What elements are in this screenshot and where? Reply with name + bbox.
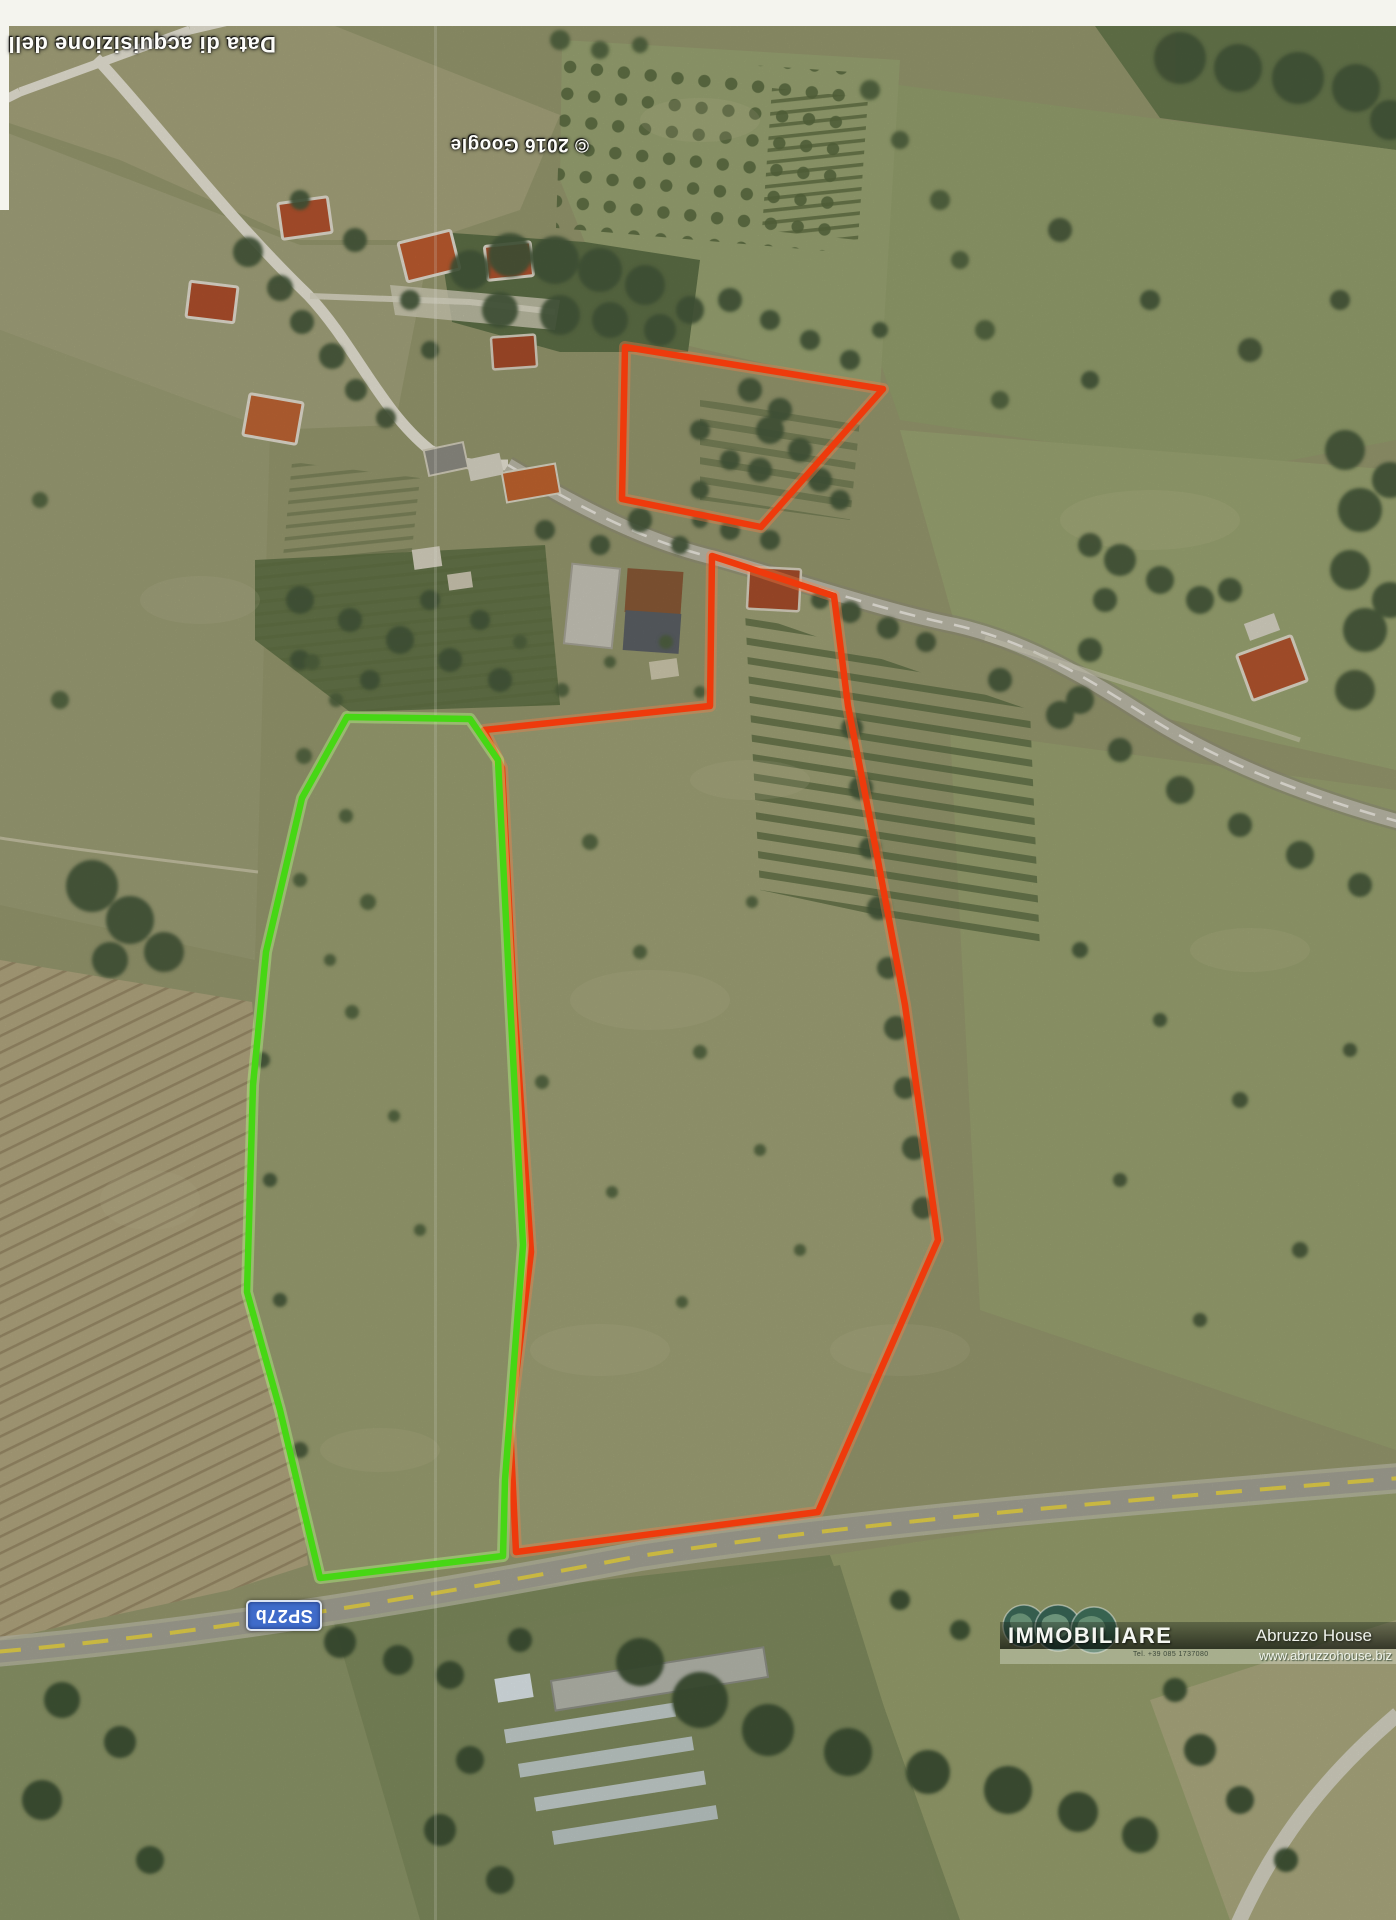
aerial-photo-scan: Data di acquisizione dell © 2016 Google …	[0, 0, 1396, 1920]
watermark-phone-text: Tel. +39 085 1737080	[1133, 1651, 1209, 1658]
google-copyright-caption: © 2016 Google	[413, 129, 589, 155]
watermark-agency-text: Abruzzo House	[1256, 1626, 1372, 1646]
scan-margin-top	[0, 0, 1396, 26]
road-shield-sp27b: SP27b	[246, 1600, 322, 1631]
watermark-brand-text: IMMOBILIARE	[1008, 1623, 1172, 1649]
acquisition-date-caption: Data di acquisizione dell	[8, 29, 276, 57]
agency-watermark: IMMOBILIARE Abruzzo House Tel. +39 085 1…	[1000, 1596, 1396, 1668]
watermark-website-text: www.abruzzohouse.biz	[1259, 1648, 1392, 1663]
